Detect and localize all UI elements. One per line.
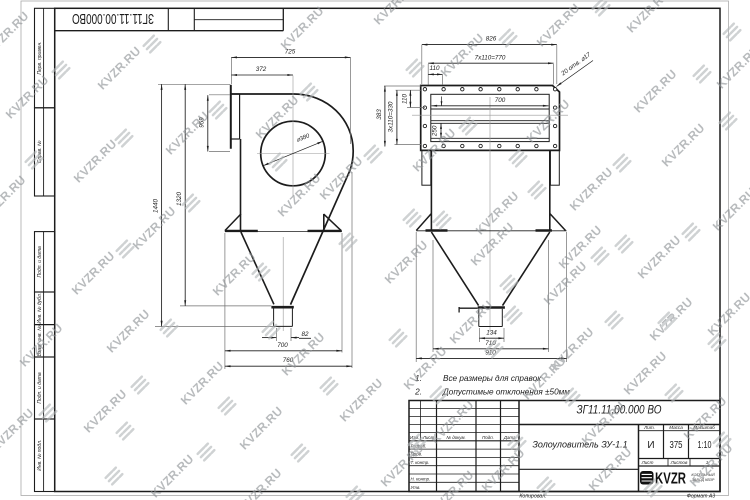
svg-text:372: 372 — [256, 66, 267, 73]
svg-text:Подп. и дата: Подп. и дата — [37, 372, 43, 404]
svg-text:И: И — [647, 440, 654, 451]
svg-text:Листов: Листов — [670, 460, 688, 465]
svg-text:№ докум.: № докум. — [446, 435, 465, 440]
svg-text:Подп. и дата: Подп. и дата — [37, 246, 43, 278]
svg-text:1440: 1440 — [152, 199, 159, 214]
svg-text:82: 82 — [301, 331, 309, 338]
svg-text:134: 134 — [486, 329, 497, 336]
svg-text:383: 383 — [376, 109, 383, 120]
svg-text:Перв. примен.: Перв. примен. — [37, 41, 43, 74]
svg-text:1:10: 1:10 — [698, 440, 712, 451]
svg-text:Золоуловитель ЗУ-1.1: Золоуловитель ЗУ-1.1 — [532, 440, 627, 450]
svg-text:ЗГ11.11.00.000ВО: ЗГ11.11.00.000ВО — [72, 10, 154, 27]
svg-text:110: 110 — [402, 93, 409, 104]
svg-text:Допустимые отклонения ±50мм: Допустимые отклонения ±50мм — [442, 388, 570, 397]
svg-text:KVZR: KVZR — [655, 471, 686, 488]
svg-text:700: 700 — [495, 97, 506, 104]
svg-text:826: 826 — [486, 36, 497, 43]
svg-text:Масса: Масса — [669, 425, 683, 430]
svg-text:700: 700 — [277, 342, 288, 349]
svg-text:Утв.: Утв. — [411, 485, 421, 490]
svg-text:375: 375 — [670, 440, 683, 451]
svg-text:Формат А3: Формат А3 — [687, 493, 715, 499]
svg-text:7x110=770: 7x110=770 — [475, 54, 506, 61]
svg-text:Лист: Лист — [641, 460, 654, 465]
svg-text:2.: 2. — [414, 388, 422, 397]
svg-text:Инв. № дубл.: Инв. № дубл. — [37, 293, 43, 324]
svg-text:250: 250 — [432, 125, 439, 137]
svg-text:Лит.: Лит. — [643, 425, 655, 430]
svg-text:3x110=330: 3x110=330 — [388, 101, 395, 132]
svg-text:Все размеры для справок: Все размеры для справок — [443, 374, 542, 383]
svg-text:Подп.: Подп. — [482, 435, 494, 440]
svg-text:Инв. № подл.: Инв. № подл. — [37, 440, 43, 471]
svg-text:Н. контр.: Н. контр. — [411, 477, 431, 482]
